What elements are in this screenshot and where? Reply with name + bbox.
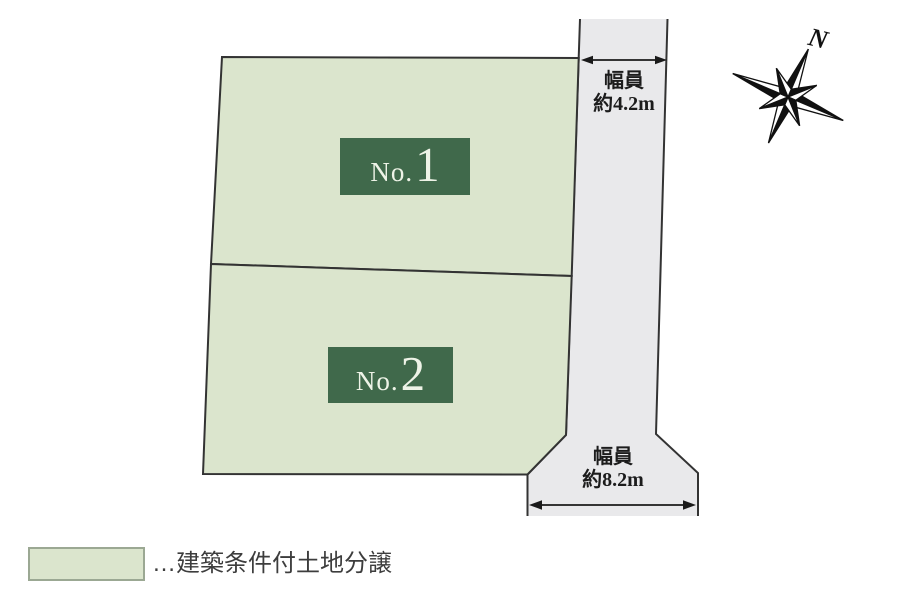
lot-no2-label-prefix: No. (356, 368, 399, 395)
lot-no1-label: No.1 (340, 138, 470, 195)
road-top-width-line2: 約4.2m (593, 93, 655, 116)
lot-no1-label-prefix: No. (370, 159, 413, 186)
lot-no2-label: No.2 (328, 347, 453, 403)
compass-rose-icon (713, 26, 863, 167)
site-plan-diagram: No.1 No.2 幅員 約4.2m 幅員 約8.2m N …建築条件付土地分譲 (0, 0, 900, 600)
road-top-width-line1: 幅員 (593, 70, 655, 93)
lot-no1-label-number: 1 (415, 140, 440, 189)
road-bottom-width-note: 幅員 約8.2m (582, 446, 644, 492)
site-plan-canvas (0, 0, 900, 600)
road-top-width-note: 幅員 約4.2m (593, 70, 655, 116)
lot-no2-label-number: 2 (401, 349, 426, 398)
legend-text: …建築条件付土地分譲 (152, 549, 392, 579)
road-bottom-width-line2: 約8.2m (582, 469, 644, 492)
legend-swatch (28, 547, 145, 581)
road-bottom-width-line1: 幅員 (582, 446, 644, 469)
